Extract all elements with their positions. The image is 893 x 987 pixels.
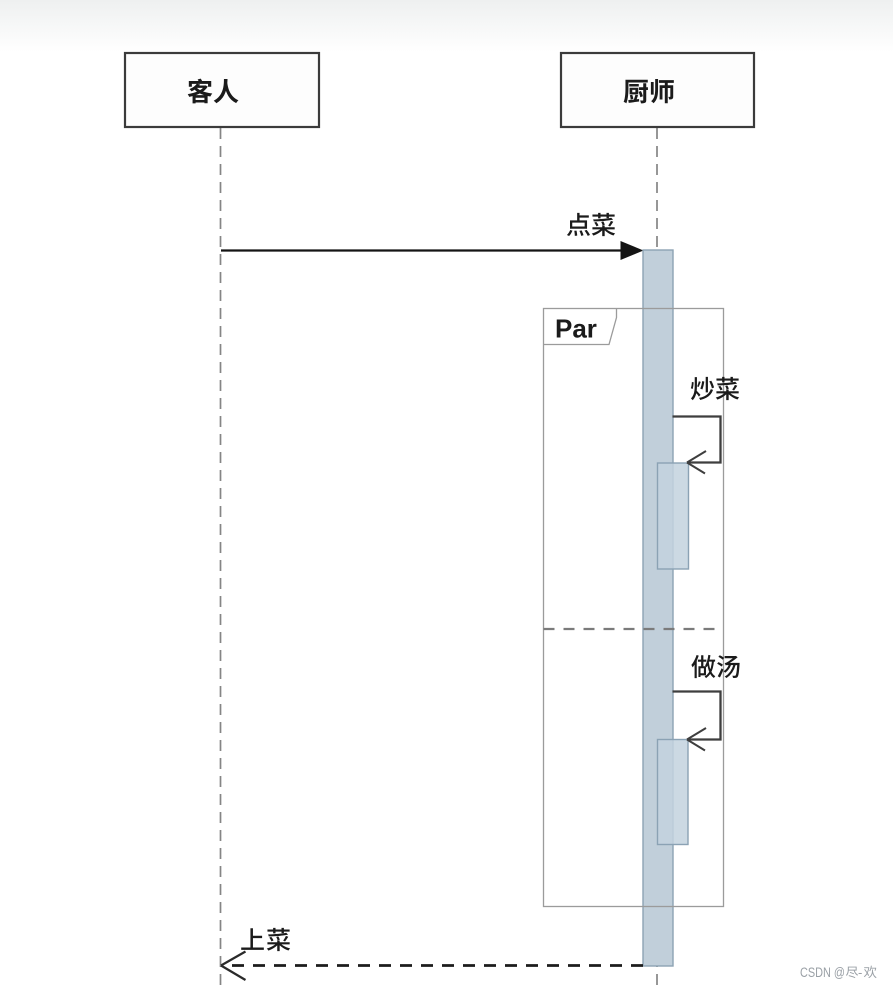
svg-text:CSDN @: CSDN @ xyxy=(800,965,845,980)
svg-text:Par: Par xyxy=(555,314,597,344)
svg-text:-: - xyxy=(858,965,862,980)
